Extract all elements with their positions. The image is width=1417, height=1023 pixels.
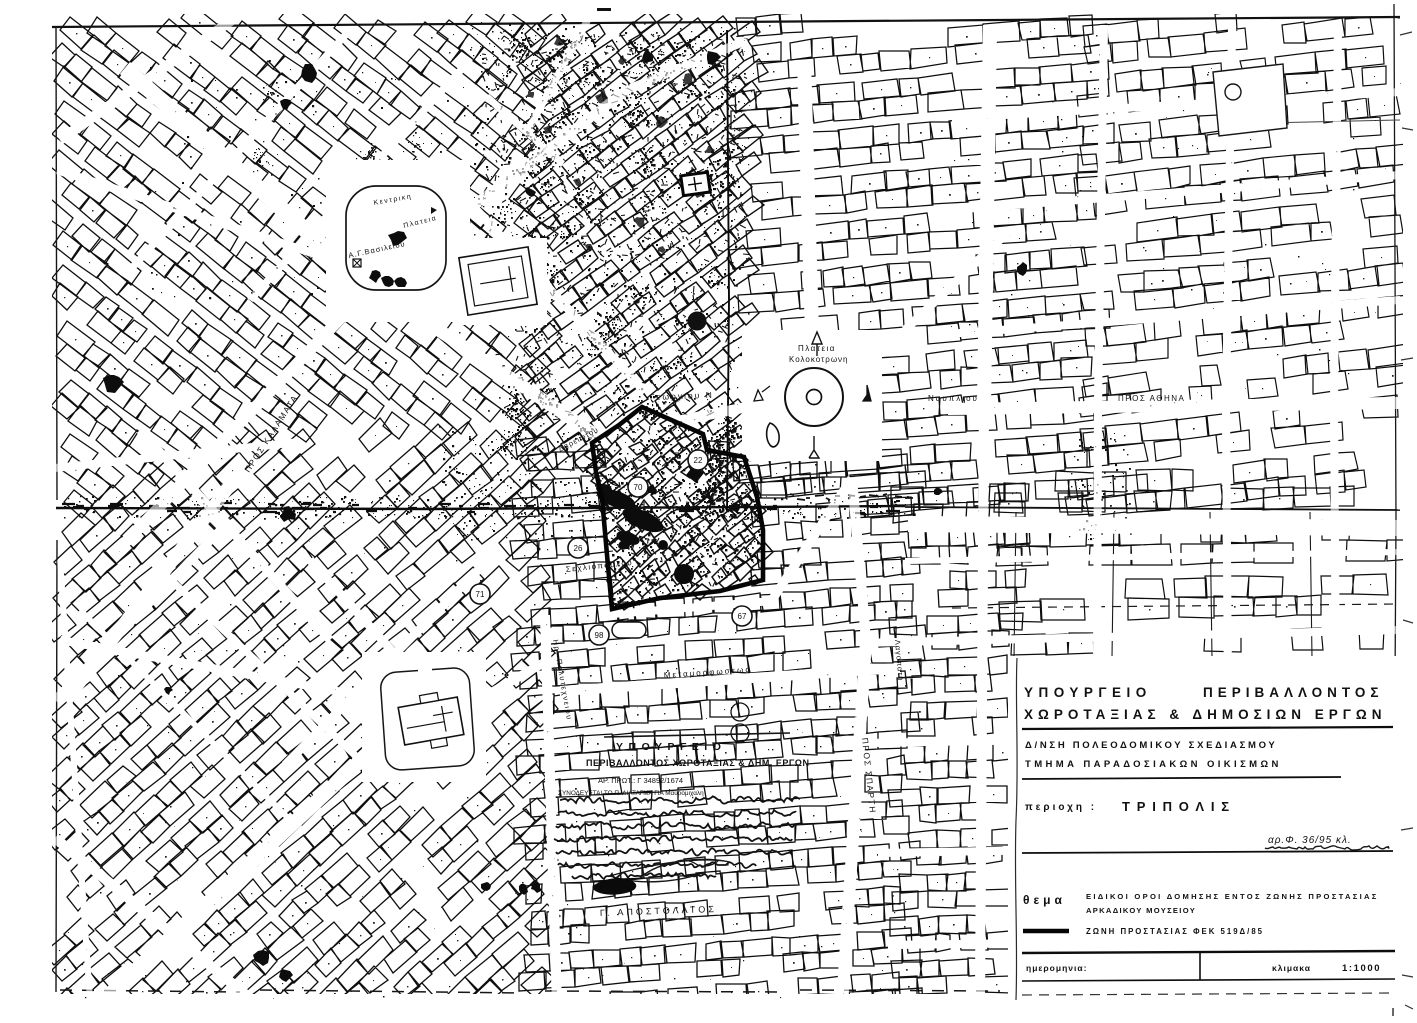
svg-text:ΠΡΟΣ ΑΘΗΝΑ: ΠΡΟΣ ΑΘΗΝΑ bbox=[1118, 394, 1185, 403]
svg-text:ΠΕΡΙΒΑΛΛΟΝΤΟΣ: ΠΕΡΙΒΑΛΛΟΝΤΟΣ bbox=[1203, 685, 1384, 700]
svg-text:αρ.Φ. 36/95 κλ.: αρ.Φ. 36/95 κλ. bbox=[1268, 835, 1352, 846]
svg-text:ΧΩΡΟΤΑΞΙΑΣ & ΔΗΜΟΣΙΩΝ ΕΡΓΩΝ: ΧΩΡΟΤΑΞΙΑΣ & ΔΗΜΟΣΙΩΝ ΕΡΓΩΝ bbox=[1024, 707, 1386, 722]
svg-text:ΥΠΟΥΡΓΕΙΟ: ΥΠΟΥΡΓΕΙΟ bbox=[616, 741, 726, 753]
svg-text:περιοχη :: περιοχη : bbox=[1025, 802, 1097, 813]
svg-text:ημερομηνια:: ημερομηνια: bbox=[1026, 963, 1087, 973]
svg-text:98: 98 bbox=[595, 631, 604, 640]
svg-text:ΤΡΙΠΟΛΙΣ: ΤΡΙΠΟΛΙΣ bbox=[1122, 799, 1236, 814]
svg-text:ΠΕΡΙΒΑΛΛΟΝΤΟΣ ΧΩΡΟΤΑΞΙΑΣ & ΔΗΜ: ΠΕΡΙΒΑΛΛΟΝΤΟΣ ΧΩΡΟΤΑΞΙΑΣ & ΔΗΜ. ΕΡΓΩΝ bbox=[586, 758, 810, 768]
svg-text:Ναυπλιου: Ναυπλιου bbox=[928, 394, 979, 403]
svg-text:Κολοκοτρωνη: Κολοκοτρωνη bbox=[789, 355, 849, 364]
svg-text:ΖΩΝΗ ΠΡΟΣΤΑΣΙΑΣ ΦΕΚ 519Δ/85: ΖΩΝΗ ΠΡΟΣΤΑΣΙΑΣ ΦΕΚ 519Δ/85 bbox=[1086, 927, 1264, 936]
svg-text:ΑΡΚΑΔΙΚΟΥ ΜΟΥΣΕΙΟΥ: ΑΡΚΑΔΙΚΟΥ ΜΟΥΣΕΙΟΥ bbox=[1086, 906, 1196, 915]
svg-text:ΥΠΟΥΡΓΕΙΟ: ΥΠΟΥΡΓΕΙΟ bbox=[1024, 685, 1152, 700]
svg-text:70: 70 bbox=[634, 483, 643, 492]
svg-text:Δ/ΝΣΗ ΠΟΛΕΟΔΟΜΙΚΟΥ ΣΧΕΔΙΑΣΜΟ: Δ/ΝΣΗ ΠΟΛΕΟΔΟΜΙΚΟΥ ΣΧΕΔΙΑΣΜΟΥ bbox=[1025, 740, 1277, 751]
svg-text:ΑΡ. ΠΡΩΤ.: Γ 34892/1674: ΑΡ. ΠΡΩΤ.: Γ 34892/1674 bbox=[598, 776, 683, 785]
svg-text:ΤΜΗΜΑ ΠΑΡΑΔΟΣΙΑΚΩΝ ΟΙΚΙΣΜΩΝ: ΤΜΗΜΑ ΠΑΡΑΔΟΣΙΑΚΩΝ ΟΙΚΙΣΜΩΝ bbox=[1025, 759, 1282, 770]
svg-text:22: 22 bbox=[694, 456, 703, 465]
svg-text:ΣΥΝΟΔΕΥΕΤΑΙ ΤΟ Π. ΔΙΑΤΑΓΜΑ ΓΙΑ: ΣΥΝΟΔΕΥΕΤΑΙ ΤΟ Π. ΔΙΑΤΑΓΜΑ ΓΙΑ Μαυρομιχα… bbox=[558, 790, 704, 797]
svg-text:26: 26 bbox=[574, 544, 583, 553]
svg-text:κλιμακα: κλιμακα bbox=[1272, 963, 1311, 973]
svg-text:71: 71 bbox=[476, 590, 485, 599]
svg-text:1:1000: 1:1000 bbox=[1342, 963, 1381, 974]
svg-text:ΕΙΔΙΚΟΙ ΟΡΟΙ ΔΟΜΗΣΗΣ ΕΝΤΟΣ ΖΩΝ: ΕΙΔΙΚΟΙ ΟΡΟΙ ΔΟΜΗΣΗΣ ΕΝΤΟΣ ΖΩΝΗΣ ΠΡΟΣΤΑΣ… bbox=[1086, 892, 1379, 901]
svg-text:67: 67 bbox=[738, 612, 747, 621]
svg-text:θεμα: θεμα bbox=[1023, 893, 1066, 907]
svg-text:96: 96 bbox=[693, 319, 701, 326]
